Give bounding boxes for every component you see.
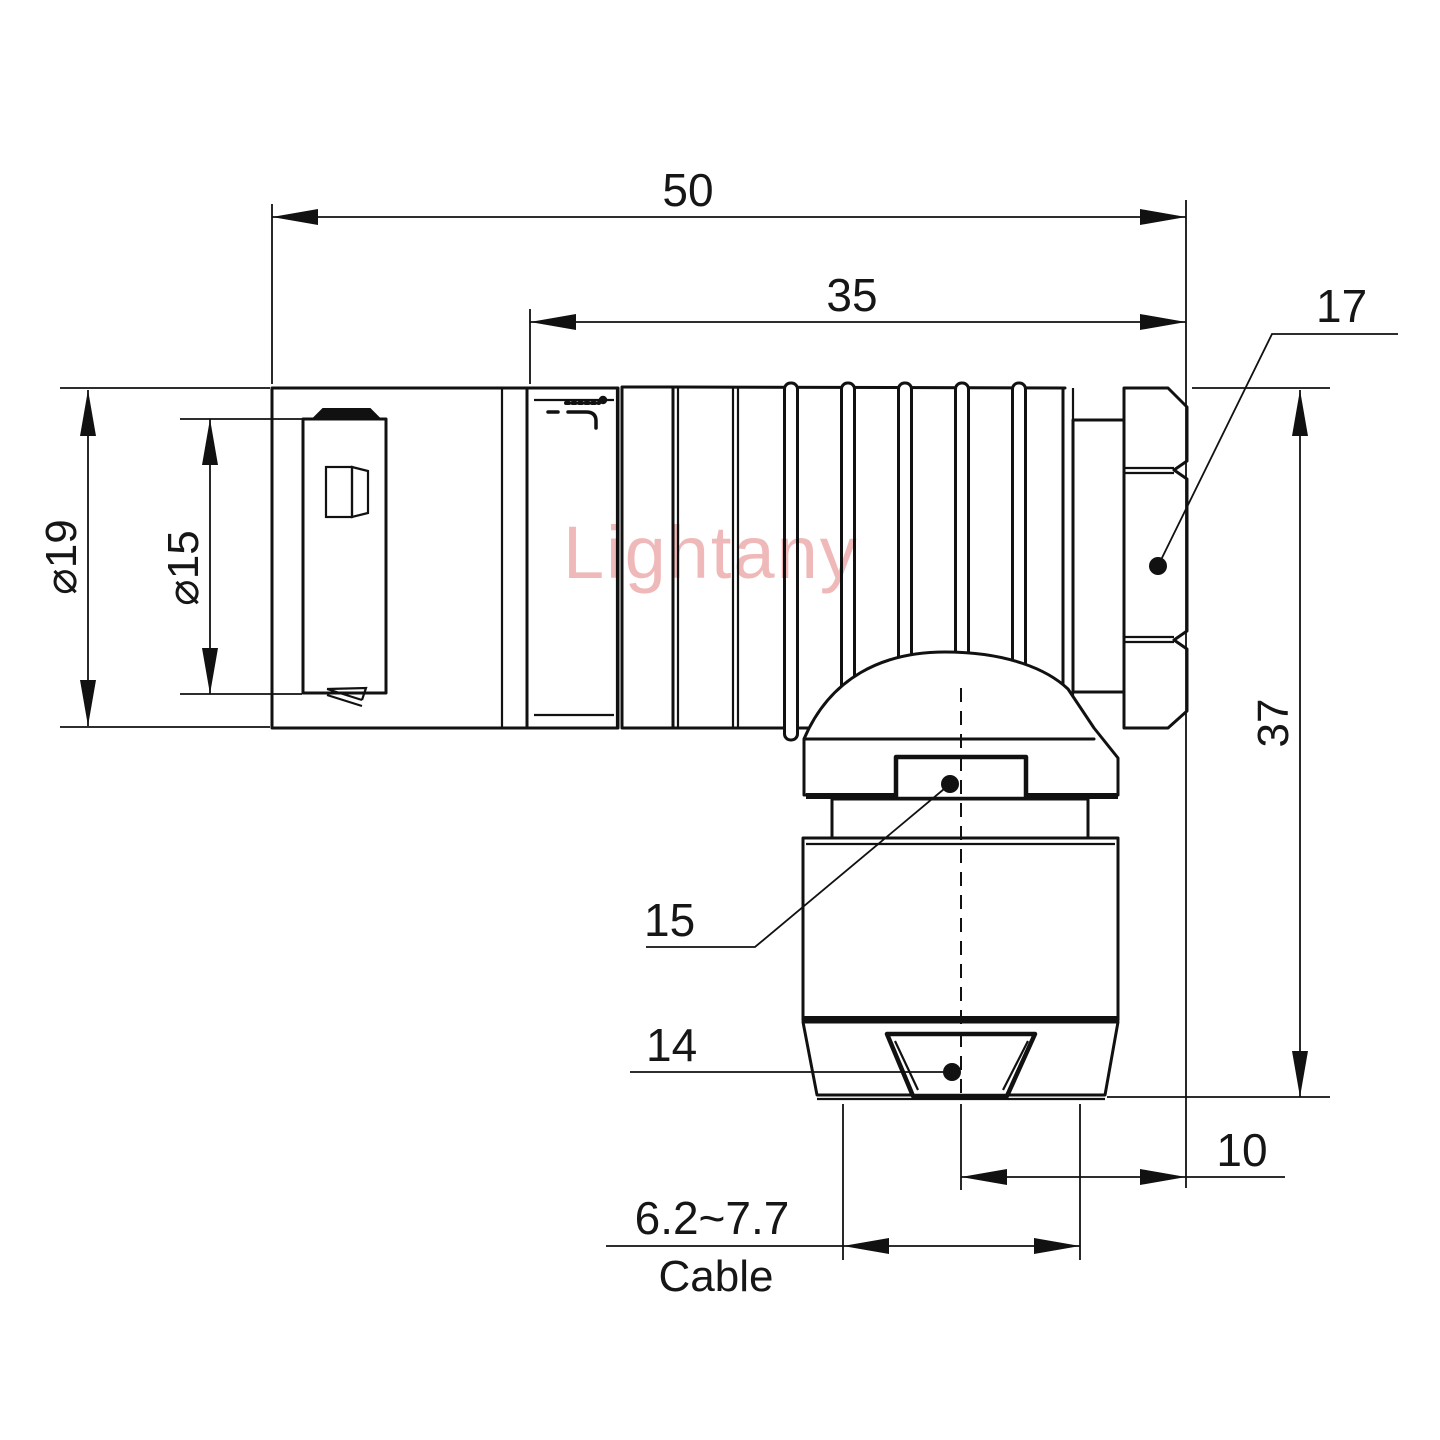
dim-17-label: 17 bbox=[1316, 280, 1367, 332]
sleeve-bump bbox=[313, 409, 380, 419]
watermark-text: Lightany bbox=[563, 511, 859, 594]
sleeve-outline bbox=[303, 419, 386, 693]
dim-50-label: 50 bbox=[662, 164, 713, 216]
technical-drawing-canvas: 50 35 17 ⌀19 bbox=[0, 0, 1440, 1440]
dimension-annotations: 50 35 17 ⌀19 bbox=[37, 164, 1398, 1301]
dim-37-label: 37 bbox=[1249, 699, 1298, 748]
dim-35-label: 35 bbox=[826, 269, 877, 321]
rear-neck bbox=[1073, 420, 1124, 692]
cable-text-label: Cable bbox=[659, 1252, 774, 1301]
dim-10-label: 10 bbox=[1216, 1124, 1267, 1176]
dim-d15-label: ⌀15 bbox=[159, 530, 208, 605]
dim-10: 10 bbox=[961, 1104, 1285, 1190]
connector-drawing: 50 35 17 ⌀19 bbox=[0, 0, 1440, 1440]
elbow-gland bbox=[803, 652, 1118, 1099]
dim-14-label: 14 bbox=[646, 1019, 697, 1071]
dim-d19-label: ⌀19 bbox=[37, 519, 86, 594]
dim-cable: 6.2~7.7 Cable bbox=[606, 1104, 1080, 1301]
grip-top-edge bbox=[673, 387, 1065, 388]
dim-d19: ⌀19 bbox=[37, 388, 270, 727]
dim-35: 35 bbox=[530, 269, 1186, 384]
dim-cable-range-label: 6.2~7.7 bbox=[635, 1192, 790, 1244]
dim-15-label: 15 bbox=[644, 894, 695, 946]
